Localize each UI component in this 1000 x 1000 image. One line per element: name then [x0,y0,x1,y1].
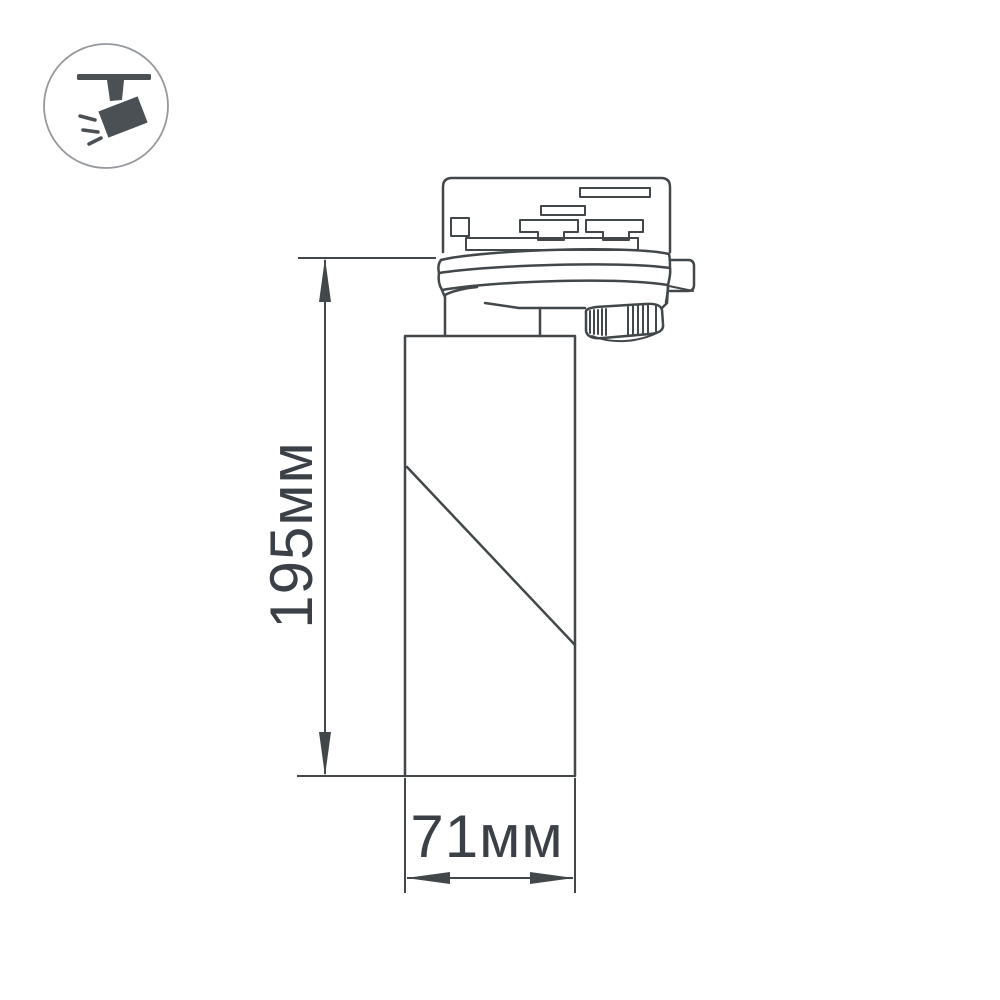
arrow-left-icon [406,872,450,884]
adapter-square-port [451,218,469,236]
arrow-up-icon [319,258,331,302]
adapter-collar [438,249,670,302]
light-ray [83,130,98,132]
knob-knurling [590,305,656,335]
fixture-stem [107,80,124,101]
latch-tab [669,260,694,291]
arrow-down-icon [319,732,331,776]
technical-drawing-page: 195мм 71мм [0,0,1000,1000]
width-dimension: 71мм [405,778,575,893]
track-bar [77,74,151,80]
knob-mount-right [662,287,668,308]
body-diagonal-seam [407,467,575,645]
light-ray [89,138,101,144]
height-dimension-label: 195мм [258,441,325,629]
ceiling-track-spotlight-icon [77,74,151,144]
knob-mount-plate [485,303,540,308]
drawing-canvas: 195мм 71мм [0,0,1000,1000]
collar-ring-bottom [442,281,668,290]
width-dimension-label: 71мм [410,803,563,870]
neck-and-knob [445,287,668,341]
arrow-right-icon [530,872,574,884]
lamp-body [405,336,575,776]
mounting-type-badge [44,44,168,168]
badge-circle [44,44,168,168]
track-adapter-head [443,178,670,252]
adapter-slot-middle [541,206,585,215]
collar-ring-middle [439,264,670,273]
light-ray [80,116,95,120]
collar-left-edge [438,260,445,297]
adapter-slot-top [580,188,650,197]
fixture-head [98,96,147,137]
